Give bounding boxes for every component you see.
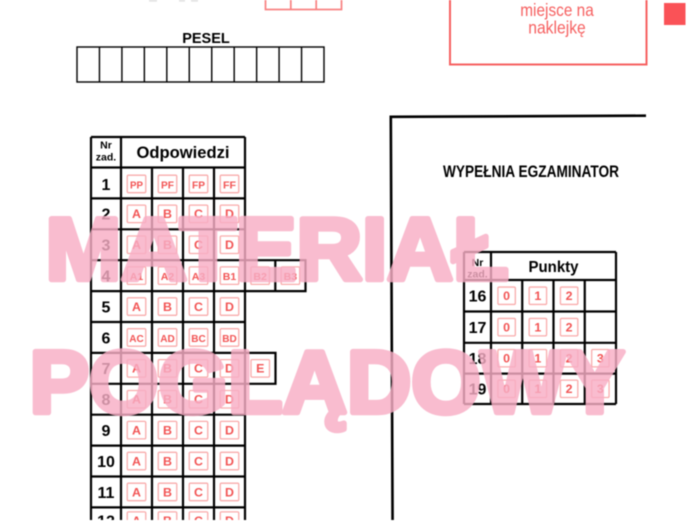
svg-text:12: 12 (97, 513, 115, 520)
svg-text:D: D (225, 514, 234, 520)
svg-text:C: C (194, 514, 203, 520)
svg-text:D: D (225, 454, 234, 468)
svg-text:zad.: zad. (96, 152, 117, 164)
svg-text:A: A (132, 514, 141, 520)
svg-text:B: B (163, 454, 172, 468)
svg-text:FF: FF (223, 179, 237, 191)
svg-text:A: A (132, 300, 141, 314)
svg-text:PESEL: PESEL (182, 31, 230, 47)
svg-text:1: 1 (102, 177, 111, 194)
svg-text:11: 11 (98, 485, 115, 502)
svg-text:PP: PP (130, 179, 143, 191)
svg-text:FP: FP (192, 179, 205, 191)
svg-text:1: 1 (534, 289, 541, 303)
svg-text:10: 10 (97, 454, 115, 471)
svg-text:WYPEŁNIA EGZAMINATOR: WYPEŁNIA EGZAMINATOR (443, 163, 619, 181)
svg-text:Odpowiedzi: Odpowiedzi (137, 143, 230, 162)
svg-text:B: B (163, 514, 172, 520)
svg-text:PF: PF (161, 179, 175, 191)
svg-text:naklejkę: naklejkę (528, 18, 586, 38)
svg-text:D: D (225, 300, 234, 314)
svg-text:A: A (132, 485, 141, 499)
svg-text:C: C (194, 485, 203, 499)
svg-text:Nr: Nr (100, 139, 112, 151)
svg-text:MATERIAŁ: MATERIAŁ (46, 200, 509, 299)
svg-text:A: A (132, 454, 141, 468)
svg-text:5: 5 (102, 299, 111, 316)
svg-text:C: C (194, 300, 203, 314)
svg-text:Punkty: Punkty (529, 259, 579, 276)
svg-text:B: B (163, 300, 172, 314)
svg-text:POGLĄDOWY: POGLĄDOWY (30, 333, 625, 432)
svg-text:B: B (163, 485, 172, 499)
svg-text:D: D (225, 485, 234, 499)
svg-text:2: 2 (566, 289, 573, 303)
svg-text:C: C (194, 454, 203, 468)
